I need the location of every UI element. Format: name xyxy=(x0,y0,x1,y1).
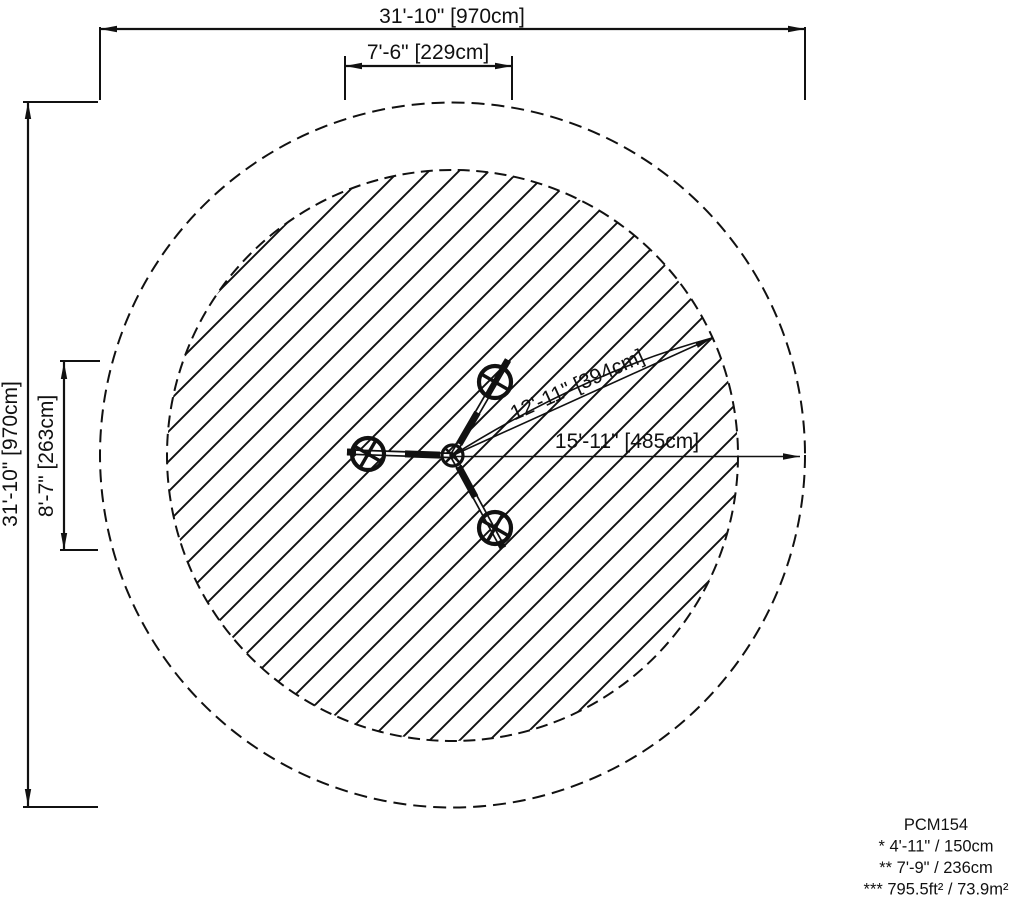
legend-note-1: * 4'-11" / 150cm xyxy=(878,838,993,856)
dim-overall-height-label: 31'-10" [970cm] xyxy=(0,381,22,527)
dim-equipment-height xyxy=(60,361,100,550)
legend-block: PCM154 * 4'-11" / 150cm ** 7'-9" / 236cm… xyxy=(864,816,1009,899)
dim-safety-zone-radius-label: 15'-11" [485cm] xyxy=(555,430,699,453)
legend-note-3: *** 795.5ft² / 73.9m² xyxy=(864,881,1009,899)
dim-equipment-height-label: 8'-7" [263cm] xyxy=(35,395,58,517)
dim-equipment-width-label: 7'-6" [229cm] xyxy=(367,41,489,64)
legend-note-2: ** 7'-9" / 236cm xyxy=(879,859,993,877)
model-code-label: PCM154 xyxy=(904,816,968,834)
dim-overall-width-label: 31'-10" [970cm] xyxy=(379,5,525,28)
plan-drawing-canvas: 31'-10" [970cm] 7'-6" [229cm] 31'-10" [9… xyxy=(0,0,1024,906)
plan-drawing-sheet: 31'-10" [970cm] 7'-6" [229cm] 31'-10" [9… xyxy=(0,0,1024,906)
